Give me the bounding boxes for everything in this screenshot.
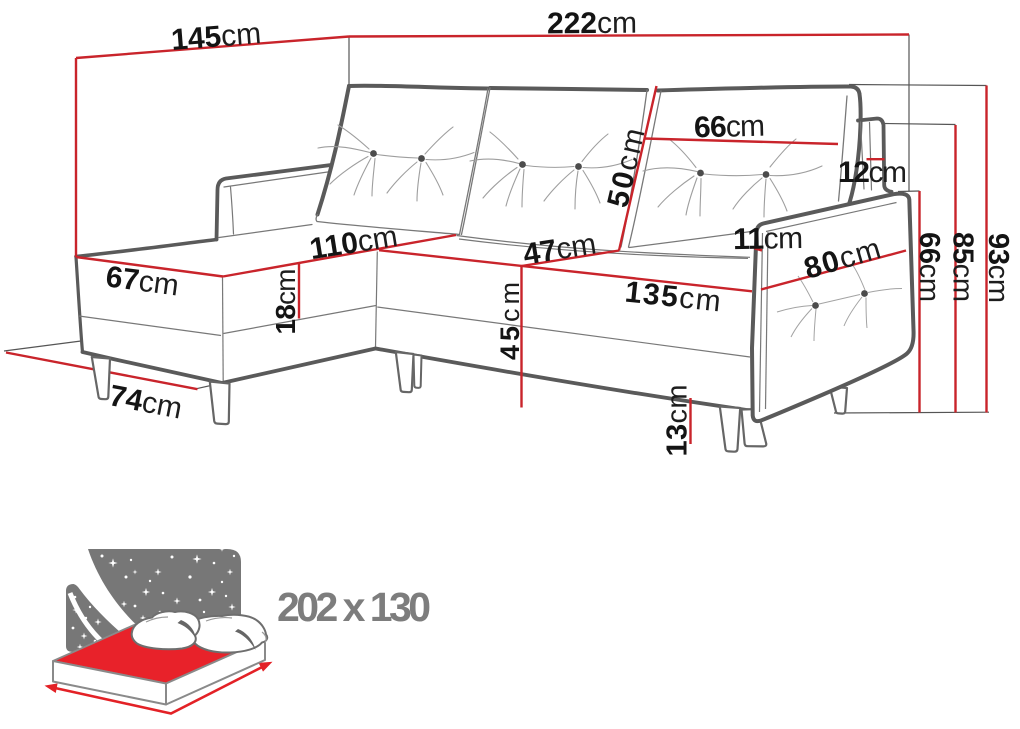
svg-text:145cm: 145cm <box>170 17 262 57</box>
svg-text:66cm: 66cm <box>694 110 766 145</box>
svg-text:222cm: 222cm <box>547 7 637 41</box>
svg-text:12cm: 12cm <box>838 156 907 189</box>
svg-text:93cm: 93cm <box>982 233 1014 303</box>
svg-text:202 x 130: 202 x 130 <box>277 584 431 630</box>
svg-text:11cm: 11cm <box>733 222 804 256</box>
svg-text:18cm: 18cm <box>270 269 301 335</box>
svg-text:85cm: 85cm <box>946 232 978 302</box>
svg-text:45cm: 45cm <box>495 282 525 360</box>
svg-text:13cm: 13cm <box>662 385 694 457</box>
svg-text:66cm: 66cm <box>913 232 945 302</box>
